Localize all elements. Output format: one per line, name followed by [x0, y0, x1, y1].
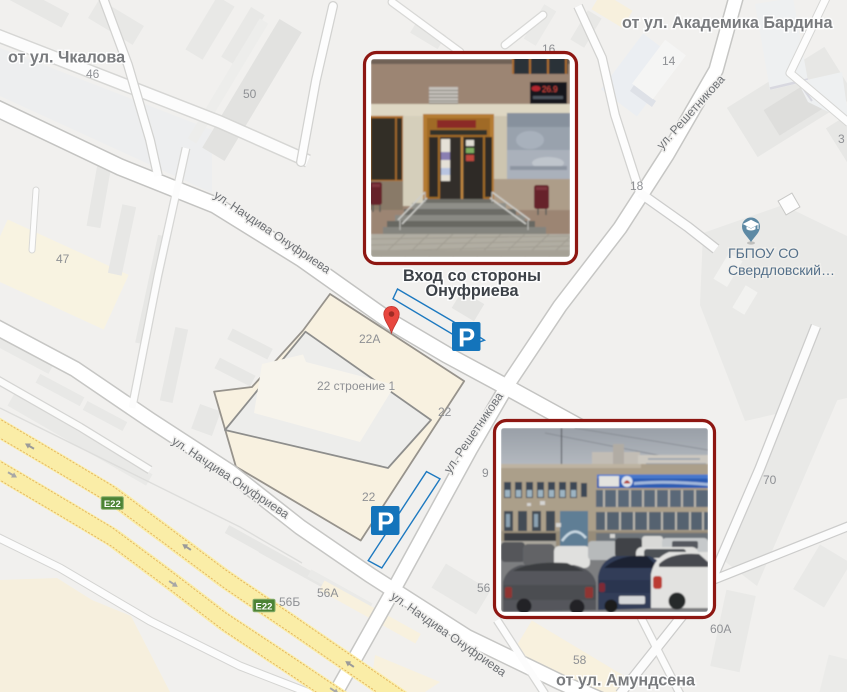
svg-text:58: 58 [573, 653, 587, 667]
svg-text:от ул. Амундсена: от ул. Амундсена [556, 672, 696, 690]
svg-text:ГБПОУ СО: ГБПОУ СО [728, 245, 799, 261]
svg-text:46: 46 [86, 67, 100, 81]
svg-text:9: 9 [482, 466, 489, 480]
svg-text:56А: 56А [317, 586, 338, 600]
svg-text:от ул. Академика Бардина: от ул. Академика Бардина [622, 14, 833, 32]
svg-text:Свердловский…: Свердловский… [728, 262, 835, 278]
svg-text:P: P [377, 508, 394, 536]
svg-text:Онуфриева: Онуфриева [426, 282, 520, 300]
svg-text:70: 70 [763, 473, 777, 487]
svg-text:18: 18 [630, 179, 644, 193]
svg-text:26.9: 26.9 [542, 85, 558, 94]
svg-text:22А: 22А [359, 332, 380, 346]
svg-text:от ул. Чкалова: от ул. Чкалова [8, 49, 126, 67]
svg-text:47: 47 [56, 252, 70, 266]
svg-text:60А: 60А [710, 622, 731, 636]
svg-text:56: 56 [477, 581, 491, 595]
svg-text:22: 22 [438, 405, 452, 419]
svg-text:50: 50 [243, 87, 257, 101]
svg-text:3: 3 [838, 132, 845, 146]
svg-text:14: 14 [662, 54, 676, 68]
svg-text:22: 22 [362, 490, 376, 504]
svg-text:56Б: 56Б [279, 595, 300, 609]
svg-text:P: P [458, 324, 475, 352]
svg-text:E22: E22 [104, 499, 121, 510]
svg-text:22 строение 1: 22 строение 1 [317, 379, 396, 393]
svg-text:E22: E22 [256, 602, 273, 613]
